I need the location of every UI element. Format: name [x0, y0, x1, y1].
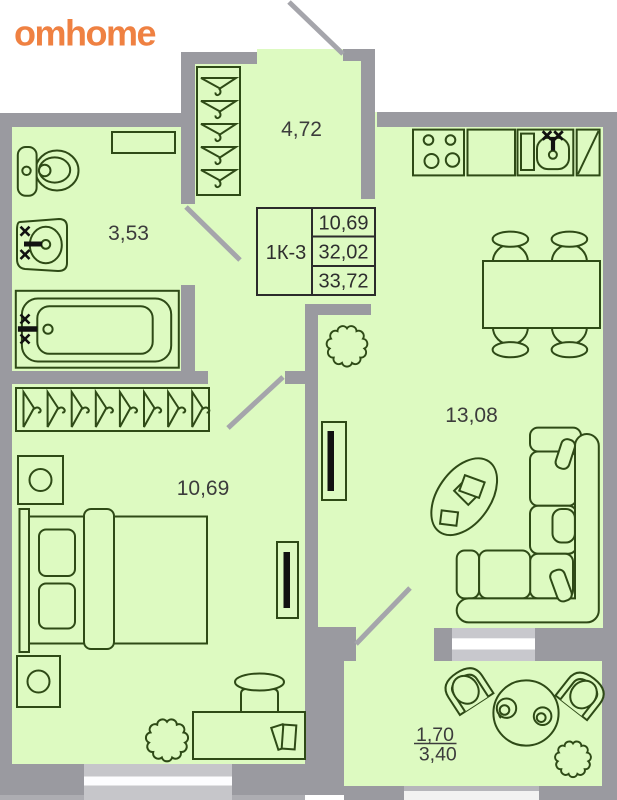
svg-text:omhome: omhome	[14, 13, 155, 54]
svg-text:10,69: 10,69	[177, 477, 230, 500]
svg-text:13,08: 13,08	[445, 404, 498, 427]
svg-text:10,69: 10,69	[318, 213, 368, 235]
svg-text:32,02: 32,02	[318, 242, 368, 264]
svg-text:33,72: 33,72	[318, 271, 368, 293]
svg-text:3,40: 3,40	[419, 744, 457, 766]
svg-text:4,72: 4,72	[281, 118, 322, 141]
svg-text:3,53: 3,53	[108, 222, 149, 245]
svg-text:1К-3: 1К-3	[266, 242, 307, 264]
